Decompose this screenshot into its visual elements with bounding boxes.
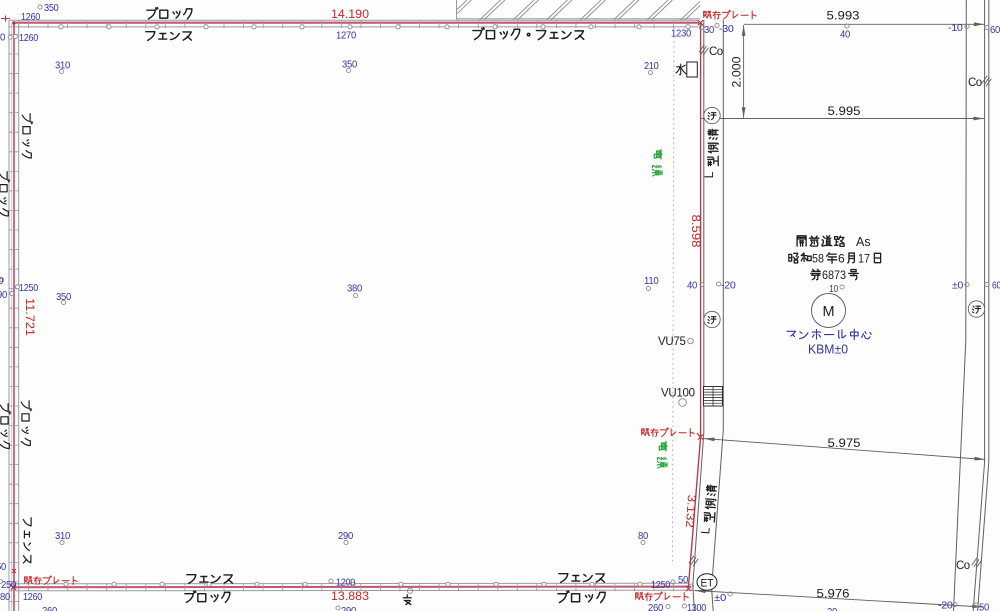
svg-text:80: 80 [0, 592, 10, 603]
svg-text:58: 58 [812, 252, 824, 266]
svg-text:L: L [702, 171, 716, 178]
svg-text:-20: -20 [938, 601, 953, 611]
svg-text:1260: 1260 [21, 12, 40, 23]
svg-text:50: 50 [979, 603, 989, 611]
svg-text:90: 90 [0, 290, 7, 301]
svg-text:±0: ±0 [952, 281, 964, 292]
svg-text:6873: 6873 [822, 268, 846, 282]
svg-text:11.721: 11.721 [23, 298, 35, 336]
svg-text:ET: ET [701, 578, 714, 590]
svg-text:290: 290 [341, 606, 356, 611]
svg-text:Co: Co [968, 77, 982, 89]
svg-text:50: 50 [0, 562, 6, 573]
svg-text:VU75: VU75 [658, 336, 686, 348]
svg-text:110: 110 [644, 276, 659, 287]
svg-text:60: 60 [992, 281, 1000, 292]
svg-text:1250: 1250 [19, 283, 38, 294]
svg-text:50: 50 [678, 575, 688, 586]
svg-text:13.883: 13.883 [331, 591, 369, 603]
svg-text:250: 250 [1, 580, 16, 591]
svg-text:260: 260 [648, 603, 663, 611]
svg-text:1300: 1300 [687, 603, 706, 611]
svg-text:3.132: 3.132 [683, 494, 697, 528]
svg-text:40: 40 [0, 33, 5, 44]
svg-text:350: 350 [56, 292, 71, 303]
svg-text:5.995: 5.995 [828, 106, 861, 118]
svg-text:As: As [856, 235, 871, 249]
svg-text:40: 40 [687, 281, 697, 292]
svg-text:0: 0 [0, 276, 3, 287]
svg-text:L: L [698, 527, 712, 535]
svg-text:30: 30 [704, 25, 714, 36]
svg-text:6: 6 [838, 252, 845, 266]
svg-text:17: 17 [858, 252, 870, 266]
svg-text:10: 10 [829, 284, 838, 295]
svg-text:5.975: 5.975 [828, 438, 861, 450]
svg-text:14.190: 14.190 [331, 9, 369, 21]
svg-text:60: 60 [990, 25, 1000, 36]
svg-text:1270: 1270 [336, 31, 356, 42]
svg-text:30: 30 [827, 607, 837, 611]
svg-text:350: 350 [44, 3, 59, 14]
svg-text:1200: 1200 [336, 578, 355, 589]
svg-text:-10: -10 [948, 23, 963, 34]
svg-text:5.976: 5.976 [817, 589, 850, 601]
svg-text:Co: Co [956, 560, 970, 572]
svg-text:VU100: VU100 [661, 388, 695, 400]
svg-text:40: 40 [840, 30, 850, 41]
svg-text:-20: -20 [721, 281, 736, 292]
svg-text:1230: 1230 [671, 29, 691, 40]
svg-text:1260: 1260 [23, 592, 42, 603]
svg-text:260: 260 [42, 606, 57, 611]
svg-text:8.598: 8.598 [689, 215, 701, 248]
svg-text:380: 380 [347, 284, 362, 295]
svg-text:M: M [822, 304, 834, 320]
svg-text:Co: Co [709, 46, 723, 58]
svg-text:±0: ±0 [714, 593, 727, 604]
svg-text:1250: 1250 [651, 580, 670, 591]
svg-text:-30: -30 [719, 24, 734, 35]
svg-text:5.993: 5.993 [827, 11, 860, 23]
svg-text:2.000: 2.000 [732, 57, 744, 88]
svg-text:1260: 1260 [19, 33, 38, 44]
svg-text:KBM±0: KBM±0 [808, 342, 848, 357]
